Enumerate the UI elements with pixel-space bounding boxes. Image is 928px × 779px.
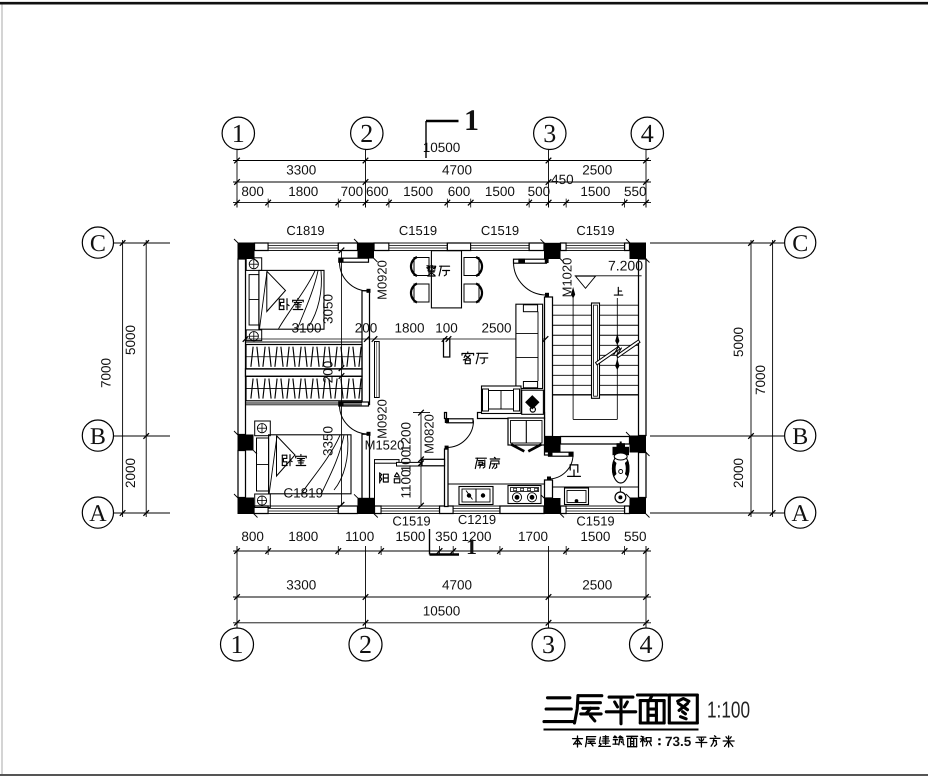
svg-text:3300: 3300: [286, 163, 316, 178]
svg-text:3350: 3350: [321, 426, 336, 456]
svg-text:7000: 7000: [753, 365, 768, 395]
svg-text:2: 2: [360, 119, 373, 148]
svg-text:600: 600: [366, 184, 389, 199]
svg-text:2000: 2000: [123, 458, 138, 488]
svg-text:550: 550: [624, 529, 647, 544]
svg-text:B: B: [90, 424, 106, 450]
svg-text:73.5: 73.5: [665, 734, 692, 749]
svg-text:500: 500: [528, 184, 551, 199]
svg-text:2500: 2500: [481, 321, 511, 336]
svg-text:450: 450: [551, 172, 574, 187]
svg-text:1: 1: [466, 534, 477, 559]
svg-text:3: 3: [542, 630, 555, 659]
svg-text:4700: 4700: [442, 578, 472, 593]
svg-text:3050: 3050: [321, 294, 336, 324]
svg-text:1500: 1500: [395, 529, 425, 544]
svg-text:2: 2: [359, 630, 372, 659]
svg-text:1: 1: [232, 119, 245, 148]
svg-text:700: 700: [341, 184, 364, 199]
svg-text:C1519: C1519: [481, 223, 519, 238]
svg-text:1100: 1100: [345, 529, 374, 544]
svg-text:C1519: C1519: [576, 514, 614, 529]
svg-text:C: C: [90, 231, 106, 257]
svg-text:800: 800: [241, 529, 264, 544]
svg-text:3300: 3300: [286, 578, 316, 593]
svg-text:C1519: C1519: [576, 223, 614, 238]
svg-text:1500: 1500: [580, 529, 610, 544]
svg-text:5000: 5000: [123, 325, 138, 355]
svg-text:10500: 10500: [423, 140, 461, 155]
svg-text:4: 4: [640, 630, 653, 659]
svg-text:5000: 5000: [731, 327, 746, 357]
svg-text:3100: 3100: [291, 321, 321, 336]
svg-text:100: 100: [399, 450, 414, 473]
svg-text:1100: 1100: [399, 469, 414, 498]
svg-text:1500: 1500: [580, 184, 610, 199]
svg-text:C1519: C1519: [399, 223, 437, 238]
svg-text:M0920: M0920: [375, 399, 390, 439]
svg-text:1:100: 1:100: [707, 697, 750, 723]
svg-text:600: 600: [448, 184, 471, 199]
svg-text:A: A: [792, 501, 810, 527]
svg-text:M0820: M0820: [422, 414, 437, 454]
svg-text:800: 800: [241, 184, 264, 199]
svg-text:1: 1: [231, 630, 244, 659]
svg-text:200: 200: [355, 321, 378, 336]
svg-text:1800: 1800: [288, 529, 318, 544]
svg-text:2500: 2500: [582, 163, 612, 178]
svg-text:C1519: C1519: [392, 514, 430, 529]
svg-text:100: 100: [435, 321, 458, 336]
svg-text:B: B: [792, 424, 808, 450]
svg-text:M1520: M1520: [365, 438, 405, 453]
svg-text:4700: 4700: [442, 163, 472, 178]
svg-text:4: 4: [641, 119, 654, 148]
svg-text:1500: 1500: [403, 184, 433, 199]
svg-text:7.200: 7.200: [608, 258, 643, 274]
svg-text:350: 350: [435, 529, 458, 544]
svg-text:1700: 1700: [518, 529, 548, 544]
svg-text:C1219: C1219: [458, 512, 496, 527]
svg-text:1800: 1800: [394, 321, 424, 336]
svg-text:1800: 1800: [288, 184, 318, 199]
svg-text:1500: 1500: [485, 184, 515, 199]
svg-text:550: 550: [624, 184, 647, 199]
svg-text:3: 3: [543, 119, 556, 148]
svg-text:2500: 2500: [582, 578, 612, 593]
svg-text:C1819: C1819: [283, 486, 323, 501]
svg-text:M1020: M1020: [560, 258, 575, 298]
svg-text:2000: 2000: [731, 458, 746, 488]
svg-text:C1819: C1819: [286, 223, 324, 238]
svg-text:1: 1: [464, 104, 479, 137]
svg-text:M0920: M0920: [375, 260, 390, 300]
svg-text:10500: 10500: [423, 604, 461, 619]
svg-text:C: C: [792, 231, 808, 257]
svg-text:7000: 7000: [99, 358, 114, 388]
svg-text:A: A: [89, 501, 107, 527]
